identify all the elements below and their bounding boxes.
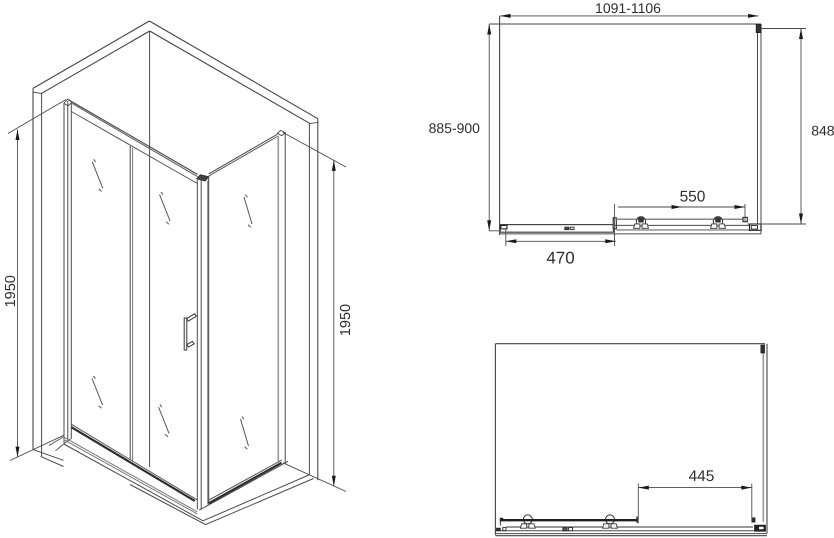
svg-text:1950: 1950 — [3, 275, 19, 307]
svg-text:848: 848 — [811, 123, 834, 139]
svg-text:1091-1106: 1091-1106 — [595, 0, 661, 16]
svg-text:1950: 1950 — [338, 304, 354, 336]
svg-text:550: 550 — [680, 189, 706, 206]
svg-text:885-900: 885-900 — [429, 120, 481, 136]
svg-text:470: 470 — [546, 249, 574, 268]
svg-text:445: 445 — [689, 468, 715, 485]
